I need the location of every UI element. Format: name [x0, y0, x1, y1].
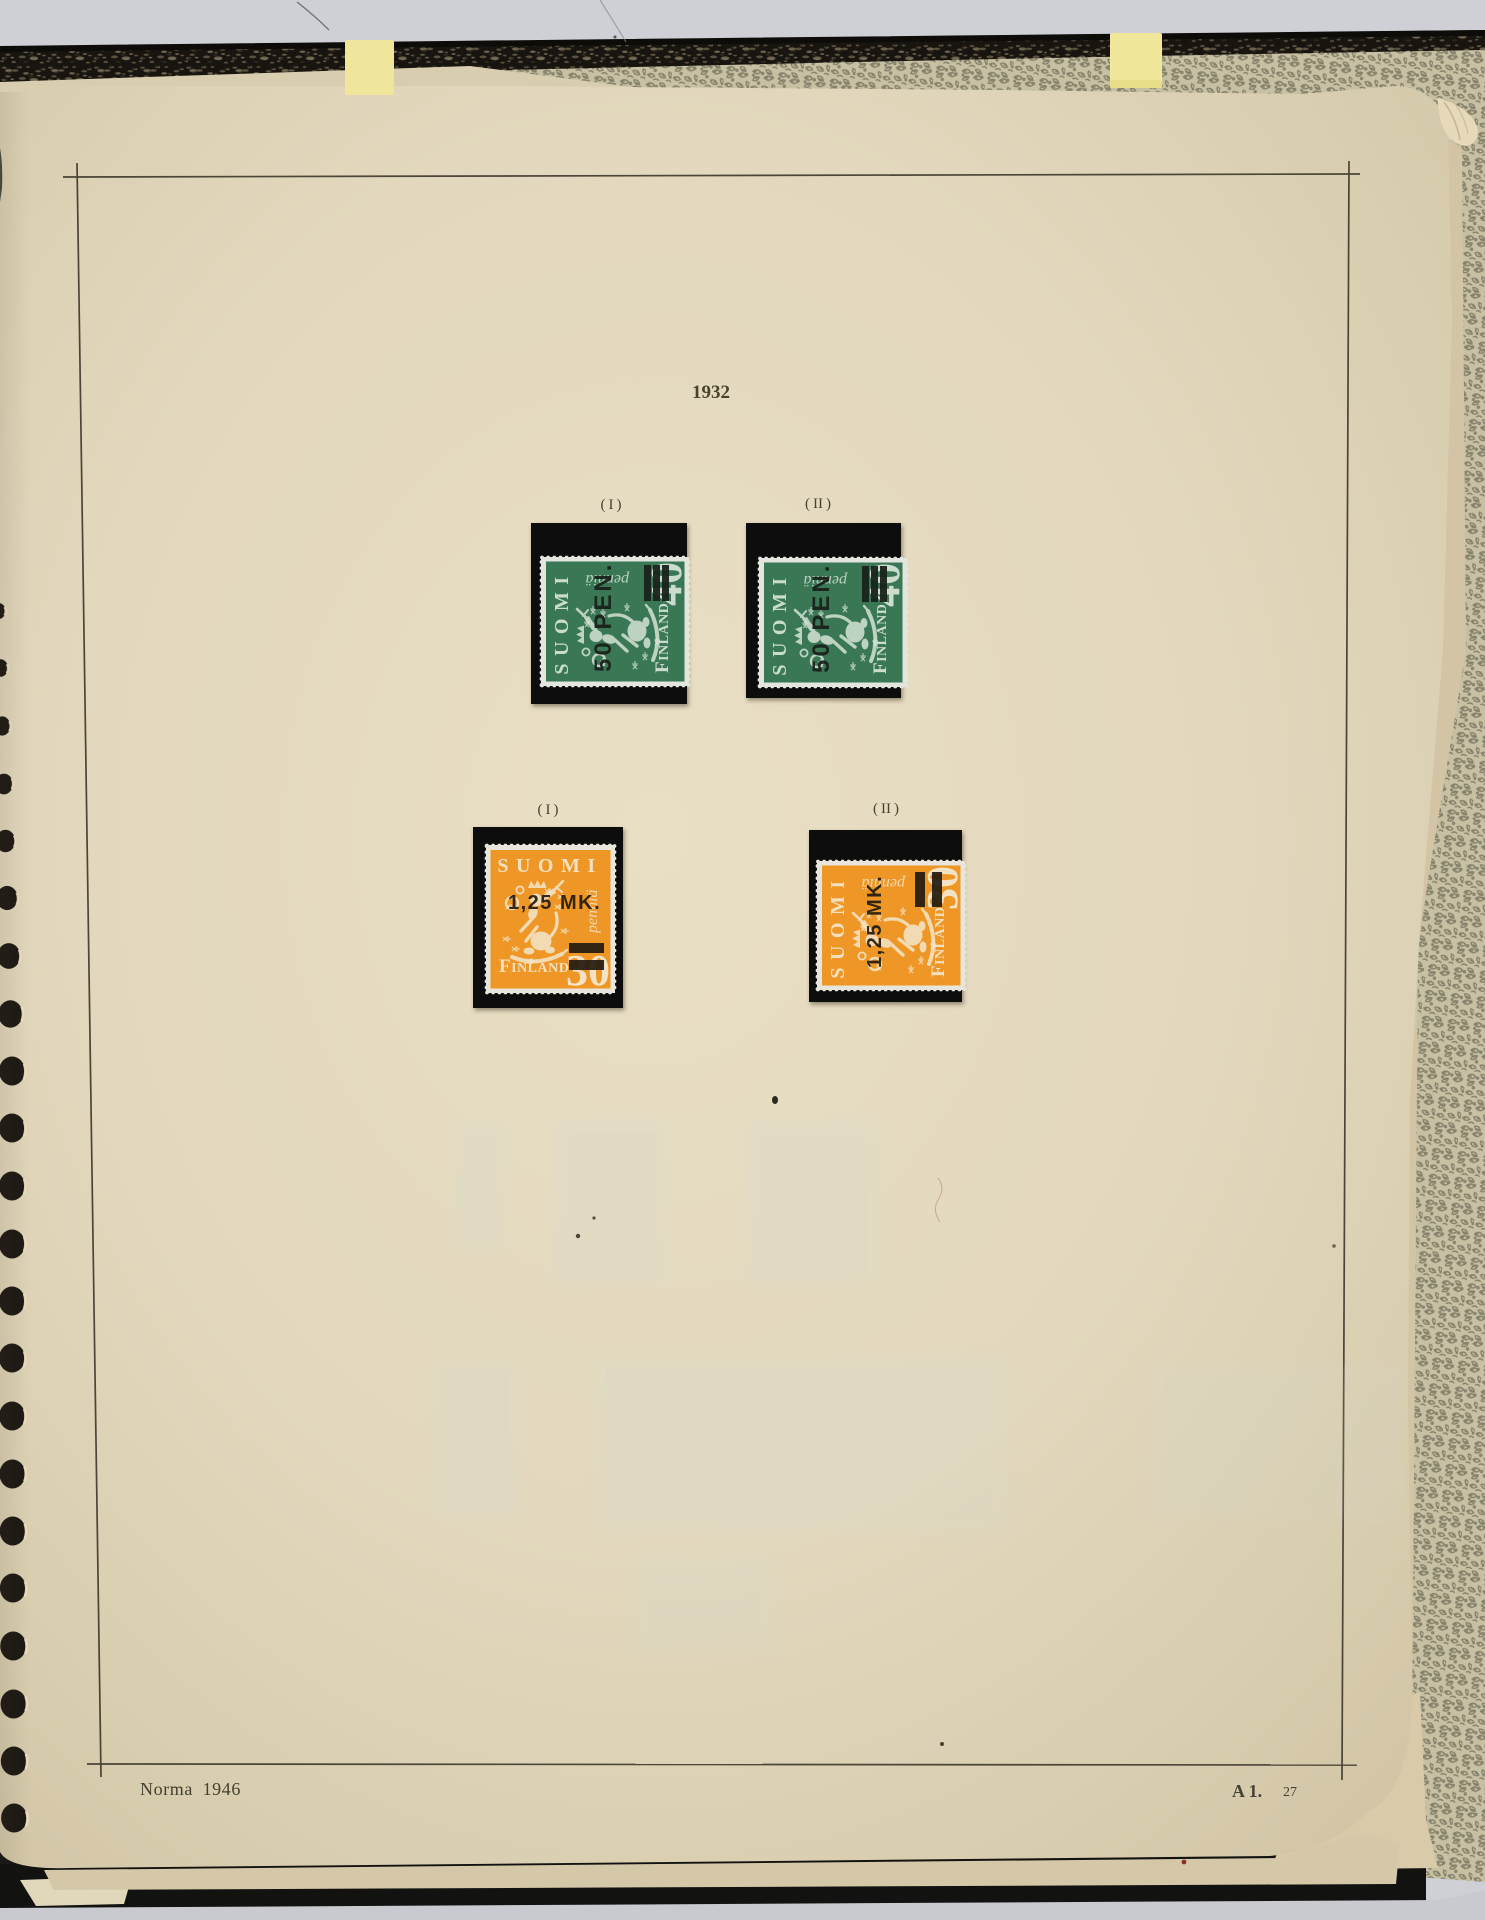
svg-text:( II ): ( II ) [873, 801, 899, 817]
svg-text:( I ): ( I ) [601, 497, 622, 513]
svg-text:27: 27 [1283, 1785, 1297, 1800]
svg-text:A 1.: A 1. [1232, 1781, 1262, 1801]
svg-text:( I ): ( I ) [538, 802, 559, 818]
svg-text:( II ): ( II ) [805, 496, 831, 512]
svg-text:Norma 1946: Norma 1946 [140, 1779, 241, 1799]
svg-text:1932: 1932 [692, 382, 730, 403]
